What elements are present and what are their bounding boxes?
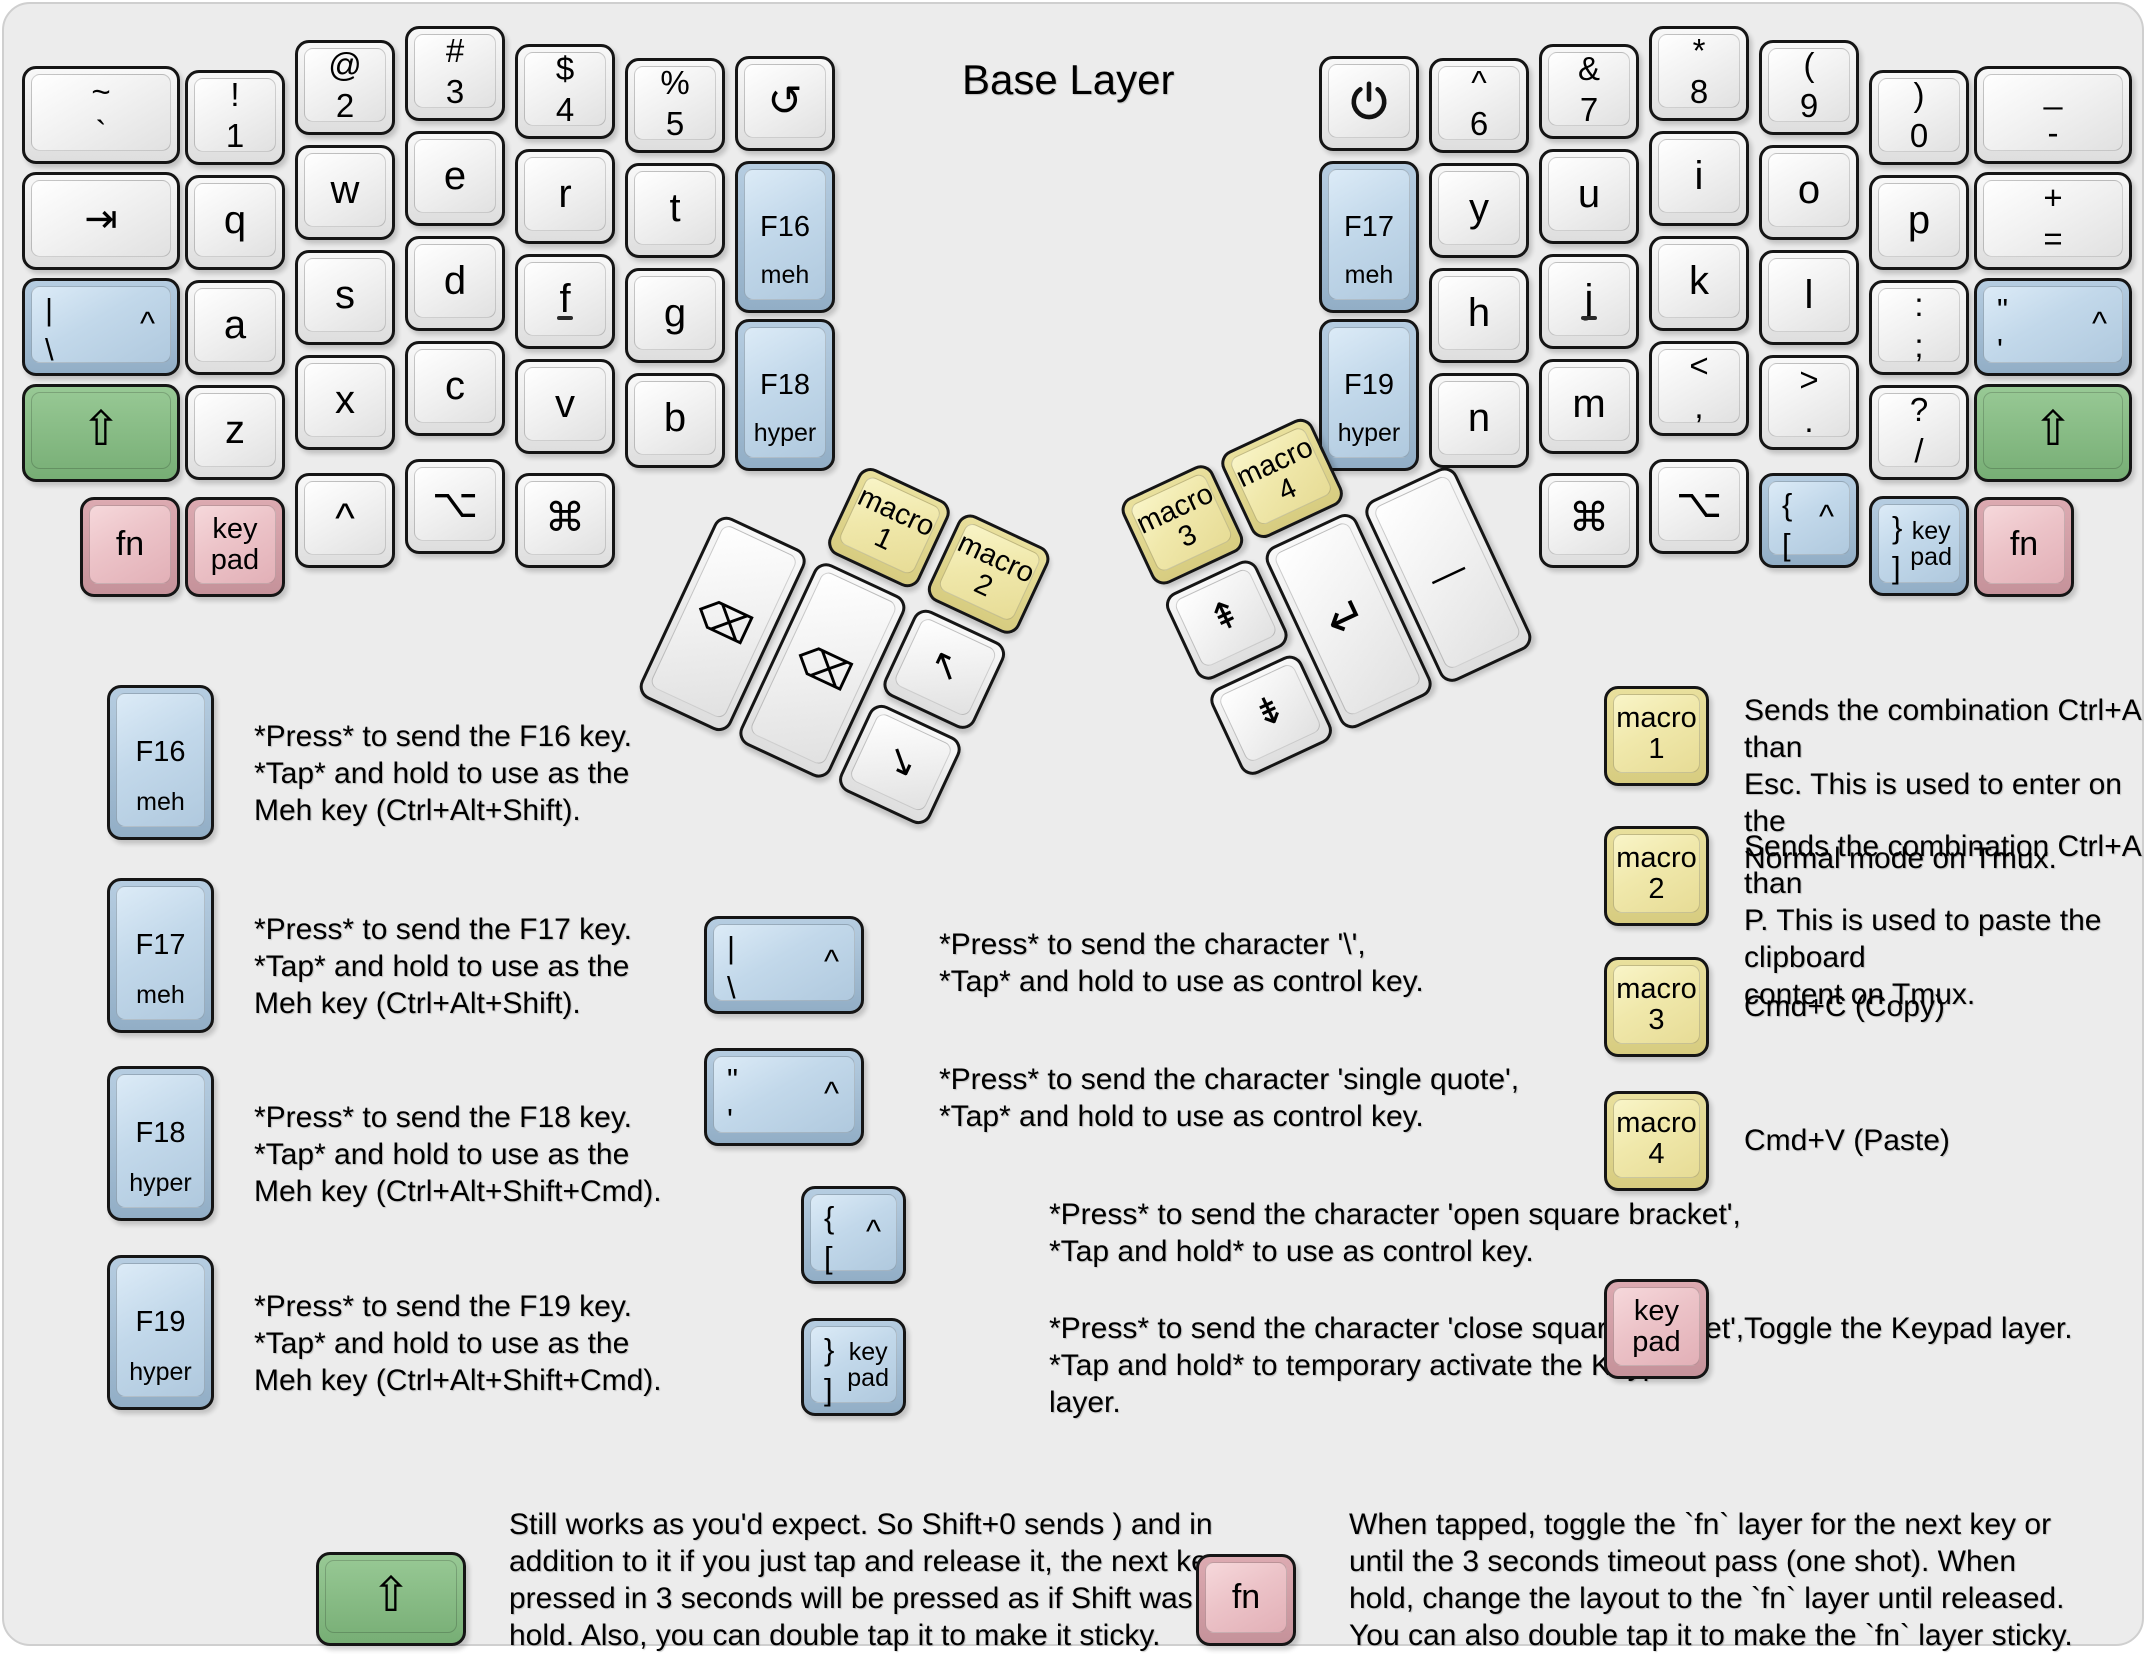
key-label: macro 1 xyxy=(1616,703,1697,764)
legend-openbracket-text: *Press* to send the character 'open squa… xyxy=(1049,1196,1741,1270)
legend-key-closebracket-cap: }]key pad xyxy=(810,1326,897,1403)
key-label-shifted: { xyxy=(1782,487,1792,523)
key-label-modifier: hyper xyxy=(117,1169,204,1198)
key-8-cap: *8 xyxy=(1658,34,1740,108)
legend-macro-2-text-line: Sends the combination Ctrl+A than xyxy=(1744,828,2142,902)
key-label-base: 0 xyxy=(1910,120,1928,152)
key-0-cap: )0 xyxy=(1878,78,1960,152)
key-label: ⇥ xyxy=(84,198,118,240)
key-7: &7 xyxy=(1539,44,1639,139)
key-semicolon-cap: :; xyxy=(1878,288,1960,362)
key-label-fkey: F19 xyxy=(1329,369,1409,402)
key-label: j xyxy=(1585,278,1594,320)
legend-f17-text-line: *Press* to send the F17 key. xyxy=(254,911,632,948)
key-e: e xyxy=(405,131,505,226)
key-comma-cap: <, xyxy=(1658,349,1740,423)
key-a: a xyxy=(185,280,285,375)
key-label-base: \ xyxy=(727,970,736,1006)
key-2-cap: @2 xyxy=(304,48,386,122)
key-macro-4-cap: macro 4 xyxy=(1228,425,1334,527)
key-f16-meh-cap: F16meh xyxy=(744,169,826,300)
key-6-cap: ^6 xyxy=(1438,66,1520,140)
key-comma: <, xyxy=(1649,341,1749,436)
key-1: !1 xyxy=(185,70,285,165)
key-label-shifted: " xyxy=(1997,292,2008,328)
base-layer-diagram: Base Layer ~`!1@2#3$4%5↺⇥qwertF16meh|\^a… xyxy=(2,2,2144,1646)
key-quote-ctrl: "'^ xyxy=(1974,278,2132,376)
key-label-fkey: F16 xyxy=(745,211,825,244)
key-label: ↵ xyxy=(1319,588,1377,651)
key-label-modifier: meh xyxy=(1329,261,1409,290)
key-l-cap: l xyxy=(1768,258,1850,332)
key-label: u xyxy=(1578,173,1600,215)
key-left-command-cap: ⌘ xyxy=(524,481,606,555)
key-label-shifted: | xyxy=(727,930,735,966)
key-f16-meh: F16meh xyxy=(735,161,835,313)
key-quote-ctrl-cap: "'^ xyxy=(1983,286,2123,363)
key-5: %5 xyxy=(625,58,725,153)
key-closebracket-keypad: }]key pad xyxy=(1869,496,1969,596)
key-label: z xyxy=(225,409,245,451)
key-label: d xyxy=(444,260,466,302)
key-label: n xyxy=(1468,397,1490,439)
key-label: key pad xyxy=(211,514,259,575)
key-label: w xyxy=(331,169,360,211)
legend-key-shift-cap: ⇧ xyxy=(325,1560,457,1633)
key-label-shifted: % xyxy=(660,67,689,99)
legend-key-backslash-cap: |\^ xyxy=(713,924,855,1001)
legend-key-openbracket: {[^ xyxy=(801,1186,906,1284)
key-right-command: ⌘ xyxy=(1539,473,1639,568)
key-6: ^6 xyxy=(1429,58,1529,153)
key-label: macro 3 xyxy=(1132,478,1231,567)
key-label-shifted: * xyxy=(1693,35,1706,67)
key-label-shifted: _ xyxy=(2044,76,2062,108)
key-right-shift-cap: ⇧ xyxy=(1983,392,2123,469)
key-refresh-cap: ↺ xyxy=(744,64,826,138)
power-icon xyxy=(1347,79,1391,123)
key-left-control-cap: ^ xyxy=(304,481,386,555)
key-backslash-ctrl-cap: |\^ xyxy=(31,286,171,363)
legend-fn-text-line: When tapped, toggle the `fn` layer for t… xyxy=(1349,1506,2073,1543)
key-label-base: . xyxy=(1804,405,1813,437)
key-left-fn-cap: fn xyxy=(89,505,171,584)
key-l: l xyxy=(1759,250,1859,345)
key-semicolon: :; xyxy=(1869,280,1969,375)
key-z: z xyxy=(185,385,285,480)
legend-f17-text-line: Meh key (Ctrl+Alt+Shift). xyxy=(254,985,632,1022)
key-f17-meh-cap: F17meh xyxy=(1328,169,1410,300)
key-p-cap: p xyxy=(1878,183,1960,257)
legend-key-f17: F17meh xyxy=(107,878,214,1033)
key-u: u xyxy=(1539,149,1639,244)
key-label-base: [ xyxy=(1782,527,1791,563)
key-label-base: 1 xyxy=(226,120,244,152)
key-refresh: ↺ xyxy=(735,56,835,151)
key-label-base: 4 xyxy=(556,94,574,126)
legend-fn-text-line: until the 3 seconds timeout pass (one sh… xyxy=(1349,1543,2073,1580)
key-label-shifted: # xyxy=(446,35,464,67)
key-e-cap: e xyxy=(414,139,496,213)
key-j: j xyxy=(1539,254,1639,349)
key-label: ↺ xyxy=(767,79,802,123)
legend-key-macro-4-cap: macro 4 xyxy=(1613,1099,1700,1178)
key-f18-hyper: F18hyper xyxy=(735,319,835,471)
key-9-cap: (9 xyxy=(1768,48,1850,122)
key-label-modifier: meh xyxy=(117,981,204,1010)
legend-f16-text-line: Meh key (Ctrl+Alt+Shift). xyxy=(254,792,632,829)
key-left-option: ⌥ xyxy=(405,459,505,554)
key-label-base: ` xyxy=(96,117,107,149)
legend-backslash-text-line: *Press* to send the character '\', xyxy=(939,926,1424,963)
key-label-hold: key pad xyxy=(847,1339,889,1391)
legend-macro-2-text: Sends the combination Ctrl+A thanP. This… xyxy=(1744,828,2142,1013)
key-g-cap: g xyxy=(634,276,716,350)
key-macro-3-cap: macro 3 xyxy=(1129,472,1235,574)
legend-backslash-text: *Press* to send the character '\',*Tap* … xyxy=(939,926,1424,1000)
key-macro-1-cap: macro 1 xyxy=(837,475,943,577)
key-label-shifted: & xyxy=(1578,53,1600,85)
legend-key-f16: F16meh xyxy=(107,685,214,840)
legend-f19-text-line: Meh key (Ctrl+Alt+Shift+Cmd). xyxy=(254,1362,662,1399)
key-right-command-cap: ⌘ xyxy=(1548,481,1630,555)
key-label-hold: ^ xyxy=(2092,305,2107,342)
key-0: )0 xyxy=(1869,70,1969,165)
key-label-shifted: ? xyxy=(1910,394,1928,426)
key-label: t xyxy=(669,187,680,229)
key-label: ⌘ xyxy=(1569,497,1609,539)
legend-key-macro-3-cap: macro 3 xyxy=(1613,965,1700,1044)
key-label: ↖ xyxy=(922,642,968,692)
key-label-base: 2 xyxy=(336,90,354,122)
key-home-cap: ↖ xyxy=(893,616,999,718)
key-label-shifted: > xyxy=(1799,364,1818,396)
key-k-cap: k xyxy=(1658,244,1740,318)
key-label: ⇧ xyxy=(81,405,121,455)
key-label: m xyxy=(1572,383,1605,425)
key-tab: ⇥ xyxy=(22,172,180,270)
key-h: h xyxy=(1429,268,1529,363)
key-label: l xyxy=(1805,274,1814,316)
key-f17-meh: F17meh xyxy=(1319,161,1419,313)
key-k: k xyxy=(1649,236,1749,331)
legend-f19-text: *Press* to send the F19 key.*Tap* and ho… xyxy=(254,1288,662,1399)
key-label-fkey: F16 xyxy=(117,736,204,769)
key-label: ⌥ xyxy=(432,483,478,525)
key-label: ⌘ xyxy=(545,497,585,539)
key-label: macro 4 xyxy=(1616,1108,1697,1169)
key-f19-hyper-cap: F19hyper xyxy=(1328,327,1410,458)
key-label: k xyxy=(1689,260,1709,302)
legend-key-shift: ⇧ xyxy=(316,1552,466,1646)
key-minus-cap: _- xyxy=(1983,74,2123,151)
key-label: ↘ xyxy=(878,737,924,787)
legend-openbracket-text-line: *Tap and hold* to use as control key. xyxy=(1049,1233,1741,1270)
key-label: p xyxy=(1908,199,1930,241)
key-label: q xyxy=(224,199,246,241)
key-label: ⇟ xyxy=(1247,688,1293,738)
key-9: (9 xyxy=(1759,40,1859,135)
key-label-fkey: F18 xyxy=(117,1117,204,1150)
key-f19-hyper: F19hyper xyxy=(1319,319,1419,471)
key-label-fkey: F17 xyxy=(1329,211,1409,244)
key-p: p xyxy=(1869,175,1969,270)
legend-key-keypad-cap: key pad xyxy=(1613,1287,1700,1366)
legend-backslash-text-line: *Tap* and hold to use as control key. xyxy=(939,963,1424,1000)
key-left-keypad-cap: key pad xyxy=(194,505,276,584)
legend-f18-text: *Press* to send the F18 key.*Tap* and ho… xyxy=(254,1099,662,1210)
key-tilde-grave: ~` xyxy=(22,66,180,164)
key-label-modifier: meh xyxy=(117,788,204,817)
key-label: c xyxy=(445,365,465,407)
legend-key-f19-cap: F19hyper xyxy=(116,1263,205,1397)
key-label-modifier: hyper xyxy=(1329,419,1409,448)
key-left-control: ^ xyxy=(295,473,395,568)
key-label-hold: ^ xyxy=(140,305,155,342)
key-label-shifted: ) xyxy=(1914,79,1925,111)
legend-key-macro-2: macro 2 xyxy=(1604,826,1709,926)
legend-shift-text-line: addition to it if you just tap and relea… xyxy=(509,1543,1223,1580)
key-period: >. xyxy=(1759,355,1859,450)
key-c: c xyxy=(405,341,505,436)
legend-fn-text-line: hold, change the layout to the `fn` laye… xyxy=(1349,1580,2073,1617)
key-label-modifier: hyper xyxy=(117,1358,204,1387)
key-n: n xyxy=(1429,373,1529,468)
key-label: macro 2 xyxy=(940,527,1039,616)
legend-f16-text-line: *Tap* and hold to use as the xyxy=(254,755,632,792)
legend-f18-text-line: *Press* to send the F18 key. xyxy=(254,1099,662,1136)
key-y: y xyxy=(1429,163,1529,258)
legend-macro-4-text-line: Cmd+V (Paste) xyxy=(1744,1122,1950,1159)
key-label: macro 4 xyxy=(1232,432,1331,521)
key-openbracket-ctrl-cap: {[^ xyxy=(1768,481,1850,555)
legend-key-quote: "'^ xyxy=(704,1048,864,1146)
key-c-cap: c xyxy=(414,349,496,423)
key-y-cap: y xyxy=(1438,171,1520,245)
legend-quote-text-line: *Press* to send the character 'single qu… xyxy=(939,1061,1519,1098)
legend-macro-4-text: Cmd+V (Paste) xyxy=(1744,1122,1950,1159)
key-label-base: ' xyxy=(1997,332,2003,368)
key-o: o xyxy=(1759,145,1859,240)
legend-f19-text-line: *Press* to send the F19 key. xyxy=(254,1288,662,1325)
key-label-base: \ xyxy=(45,332,54,368)
key-n-cap: n xyxy=(1438,381,1520,455)
legend-key-f16-cap: F16meh xyxy=(116,693,205,827)
key-f: f xyxy=(515,254,615,349)
key-label: macro 3 xyxy=(1616,974,1697,1035)
key-label: v xyxy=(555,383,575,425)
key-label-shifted: | xyxy=(45,292,53,328)
legend-macro-3-text: Cmd+C (Copy) xyxy=(1744,988,1945,1025)
legend-shift-text-line: pressed in 3 seconds will be pressed as … xyxy=(509,1580,1223,1617)
legend-key-macro-2-cap: macro 2 xyxy=(1613,834,1700,913)
key-m-cap: m xyxy=(1548,367,1630,441)
key-x: x xyxy=(295,355,395,450)
key-label-base: 6 xyxy=(1470,108,1488,140)
key-label: h xyxy=(1468,292,1490,334)
legend-keypad-text: Toggle the Keypad layer. xyxy=(1744,1310,2073,1347)
homing-bump xyxy=(557,316,573,320)
key-label: b xyxy=(664,397,686,439)
legend-keypad-text-line: Toggle the Keypad layer. xyxy=(1744,1310,2073,1347)
key-3: #3 xyxy=(405,26,505,121)
key-s-cap: s xyxy=(304,258,386,332)
legend-key-openbracket-cap: {[^ xyxy=(810,1194,897,1271)
key-7-cap: &7 xyxy=(1548,52,1630,126)
key-minus: _- xyxy=(1974,66,2132,164)
legend-quote-text-line: *Tap* and hold to use as control key. xyxy=(939,1098,1519,1135)
legend-key-keypad: key pad xyxy=(1604,1279,1709,1379)
key-a-cap: a xyxy=(194,288,276,362)
legend-key-f18-cap: F18hyper xyxy=(116,1074,205,1208)
key-label-modifier: meh xyxy=(745,261,825,290)
key-x-cap: x xyxy=(304,363,386,437)
key-4-cap: $4 xyxy=(524,52,606,126)
key-label-base: ] xyxy=(1892,550,1901,586)
key-label: r xyxy=(558,173,571,215)
key-pagedown-cap: ⇟ xyxy=(1217,662,1323,764)
key-label: e xyxy=(444,155,466,197)
legend-f17-text-line: *Tap* and hold to use as the xyxy=(254,948,632,985)
key-label-base: 7 xyxy=(1580,94,1598,126)
key-label: y xyxy=(1469,187,1489,229)
key-w-cap: w xyxy=(304,153,386,227)
key-right-option: ⌥ xyxy=(1649,459,1749,554)
key-label-fkey: F18 xyxy=(745,369,825,402)
legend-key-backslash: |\^ xyxy=(704,916,864,1014)
key-closebracket-keypad-cap: }]key pad xyxy=(1878,504,1960,583)
key-end-cap: ↘ xyxy=(848,711,954,813)
legend-key-quote-cap: "'^ xyxy=(713,1056,855,1133)
key-label-shifted: ^ xyxy=(1471,67,1487,99)
key-label: key pad xyxy=(1632,1296,1680,1357)
key-label-shifted: ~ xyxy=(91,76,110,108)
key-o-cap: o xyxy=(1768,153,1850,227)
key-label-hold: ^ xyxy=(824,1075,839,1112)
legend-key-macro-1: macro 1 xyxy=(1604,686,1709,786)
legend-f19-text-line: *Tap* and hold to use as the xyxy=(254,1325,662,1362)
key-t-cap: t xyxy=(634,171,716,245)
key-label-shifted: ! xyxy=(230,79,239,111)
legend-key-closebracket: }]key pad xyxy=(801,1318,906,1416)
page-title: Base Layer xyxy=(962,56,1174,104)
key-label-base: [ xyxy=(824,1240,833,1276)
key-label-shifted: " xyxy=(727,1062,738,1098)
key-label: fn xyxy=(116,527,144,563)
key-label-hold: ^ xyxy=(824,943,839,980)
legend-f18-text-line: *Tap* and hold to use as the xyxy=(254,1136,662,1173)
key-3-cap: #3 xyxy=(414,34,496,108)
key-w: w xyxy=(295,145,395,240)
key-r: r xyxy=(515,149,615,244)
key-m: m xyxy=(1539,359,1639,454)
key-label-base: 5 xyxy=(666,108,684,140)
legend-closebracket-text-line: layer. xyxy=(1049,1384,1744,1421)
key-4: $4 xyxy=(515,44,615,139)
key-left-keypad: key pad xyxy=(185,497,285,597)
key-label-shifted: + xyxy=(2043,182,2062,214)
key-f18-hyper-cap: F18hyper xyxy=(744,327,826,458)
key-u-cap: u xyxy=(1548,157,1630,231)
key-label-shifted: } xyxy=(824,1332,834,1368)
key-label-base: ' xyxy=(727,1102,733,1138)
key-tab-cap: ⇥ xyxy=(31,180,171,257)
key-equals: += xyxy=(1974,172,2132,270)
key-left-fn: fn xyxy=(80,497,180,597)
key-label: g xyxy=(664,292,686,334)
key-right-fn-cap: fn xyxy=(1983,505,2065,584)
key-label: ⌥ xyxy=(1676,483,1722,525)
key-z-cap: z xyxy=(194,393,276,467)
key-label-base: - xyxy=(2048,117,2059,149)
key-label: ⇞ xyxy=(1203,593,1249,643)
key-period-cap: >. xyxy=(1768,363,1850,437)
key-v: v xyxy=(515,359,615,454)
key-label: macro 1 xyxy=(841,481,940,570)
key-label-base: 9 xyxy=(1800,90,1818,122)
key-left-shift: ⇧ xyxy=(22,384,180,482)
key-label-base: ; xyxy=(1914,330,1923,362)
key-label: fn xyxy=(1232,1580,1260,1616)
homing-bump xyxy=(1581,316,1597,320)
key-label: a xyxy=(224,304,246,346)
legend-shift-text-line: hold. Also, you can double tap it to mak… xyxy=(509,1617,1223,1654)
key-d-cap: d xyxy=(414,244,496,318)
key-i-cap: i xyxy=(1658,139,1740,213)
legend-key-f19: F19hyper xyxy=(107,1255,214,1410)
key-label-shifted: } xyxy=(1892,510,1902,546)
key-label: i xyxy=(1695,155,1704,197)
key-right-fn: fn xyxy=(1974,497,2074,597)
key-q-cap: q xyxy=(194,183,276,257)
key-label-hold: ^ xyxy=(1819,498,1834,535)
legend-macro-3-text-line: Cmd+C (Copy) xyxy=(1744,988,1945,1025)
key-1-cap: !1 xyxy=(194,78,276,152)
key-label: ⇧ xyxy=(2033,405,2073,455)
legend-key-f17-cap: F17meh xyxy=(116,886,205,1020)
legend-key-macro-4: macro 4 xyxy=(1604,1091,1709,1191)
key-right-option-cap: ⌥ xyxy=(1658,467,1740,541)
legend-f16-text: *Press* to send the F16 key.*Tap* and ho… xyxy=(254,718,632,829)
key-d: d xyxy=(405,236,505,331)
key-tilde-grave-cap: ~` xyxy=(31,74,171,151)
key-label-fkey: F17 xyxy=(117,929,204,962)
key-label: ^ xyxy=(335,496,355,540)
key-g: g xyxy=(625,268,725,363)
key-t: t xyxy=(625,163,725,258)
key-right-shift: ⇧ xyxy=(1974,384,2132,482)
key-label: s xyxy=(335,274,355,316)
key-j-cap: j xyxy=(1548,262,1630,336)
key-q: q xyxy=(185,175,285,270)
key-pageup-cap: ⇞ xyxy=(1173,567,1279,669)
key-label-base: 3 xyxy=(446,76,464,108)
key-b-cap: b xyxy=(634,381,716,455)
key-label-shifted: { xyxy=(824,1200,834,1236)
key-label: ⌫ xyxy=(689,591,758,653)
key-label-hold: ^ xyxy=(866,1213,881,1250)
key-label-modifier: hyper xyxy=(745,419,825,448)
legend-quote-text: *Press* to send the character 'single qu… xyxy=(939,1061,1519,1135)
key-label-shifted: : xyxy=(1914,289,1923,321)
legend-key-fn: fn xyxy=(1196,1554,1296,1646)
key-backslash-ctrl: |\^ xyxy=(22,278,180,376)
key-label-shifted: ( xyxy=(1804,49,1815,81)
key-label-shifted: < xyxy=(1689,350,1708,382)
legend-key-fn-cap: fn xyxy=(1205,1562,1287,1633)
legend-fn-text: When tapped, toggle the `fn` layer for t… xyxy=(1349,1506,2073,1654)
key-left-command: ⌘ xyxy=(515,473,615,568)
